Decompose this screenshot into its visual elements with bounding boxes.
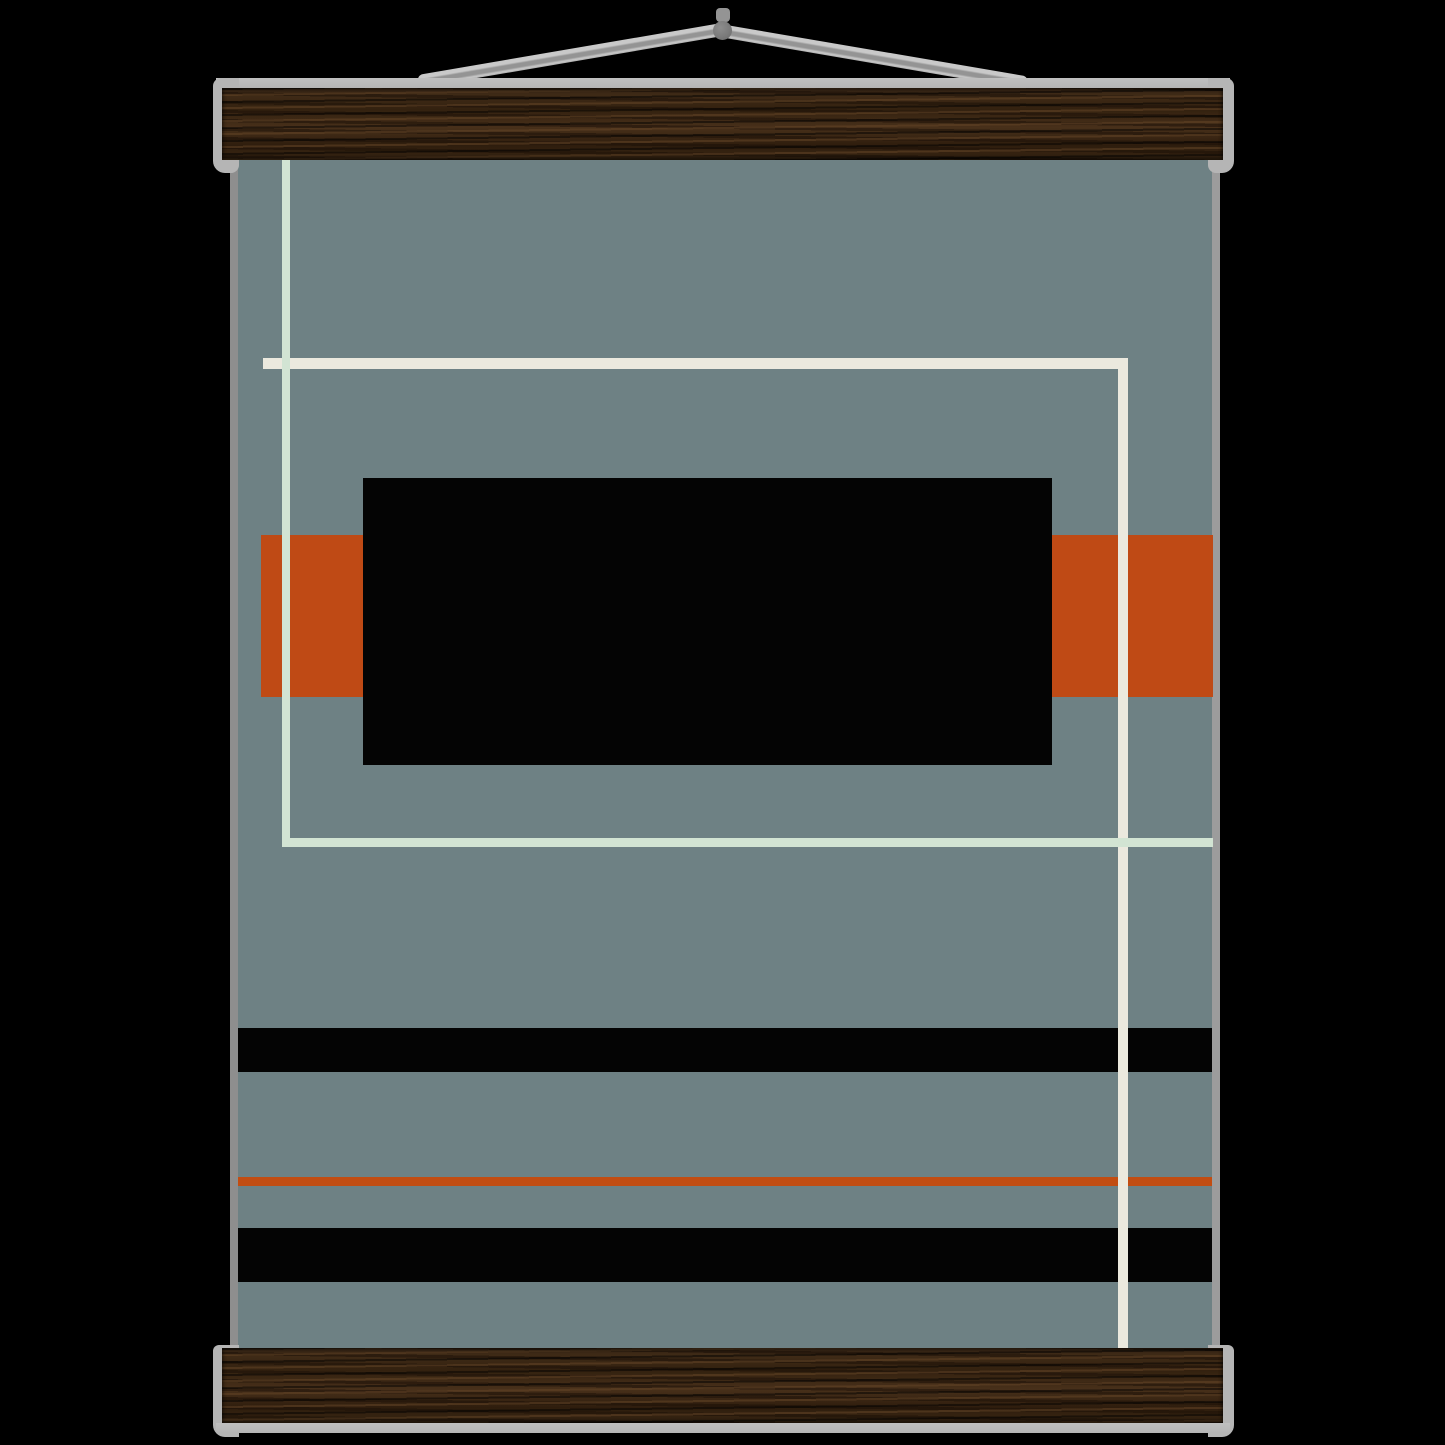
black-stripe-lower <box>238 1228 1212 1282</box>
white-line-vertical <box>1118 358 1128 1348</box>
poster-curl-edge-right <box>1212 160 1220 1348</box>
black-stripe-upper <box>238 1028 1212 1072</box>
orange-band-right <box>1052 535 1213 697</box>
top-wood-rail <box>222 88 1223 160</box>
top-rail-back-strip <box>216 78 1230 88</box>
black-rectangle <box>363 478 1052 765</box>
bottom-wood-rail <box>222 1348 1223 1423</box>
poster-curl-edge-left <box>230 160 238 1348</box>
wall-hook <box>716 8 730 22</box>
mint-line-horizontal <box>282 838 1213 847</box>
product-mockup-scene: { "scene": { "description": "Abstract mi… <box>0 0 1445 1445</box>
orange-band-left <box>261 535 363 697</box>
orange-thin-stripe <box>238 1177 1212 1186</box>
mint-line-vertical <box>282 160 290 847</box>
white-line-horizontal <box>263 358 1128 369</box>
poster-canvas <box>230 160 1220 1348</box>
nail-head-icon <box>713 21 732 40</box>
bottom-rail-back-strip <box>216 1423 1230 1433</box>
